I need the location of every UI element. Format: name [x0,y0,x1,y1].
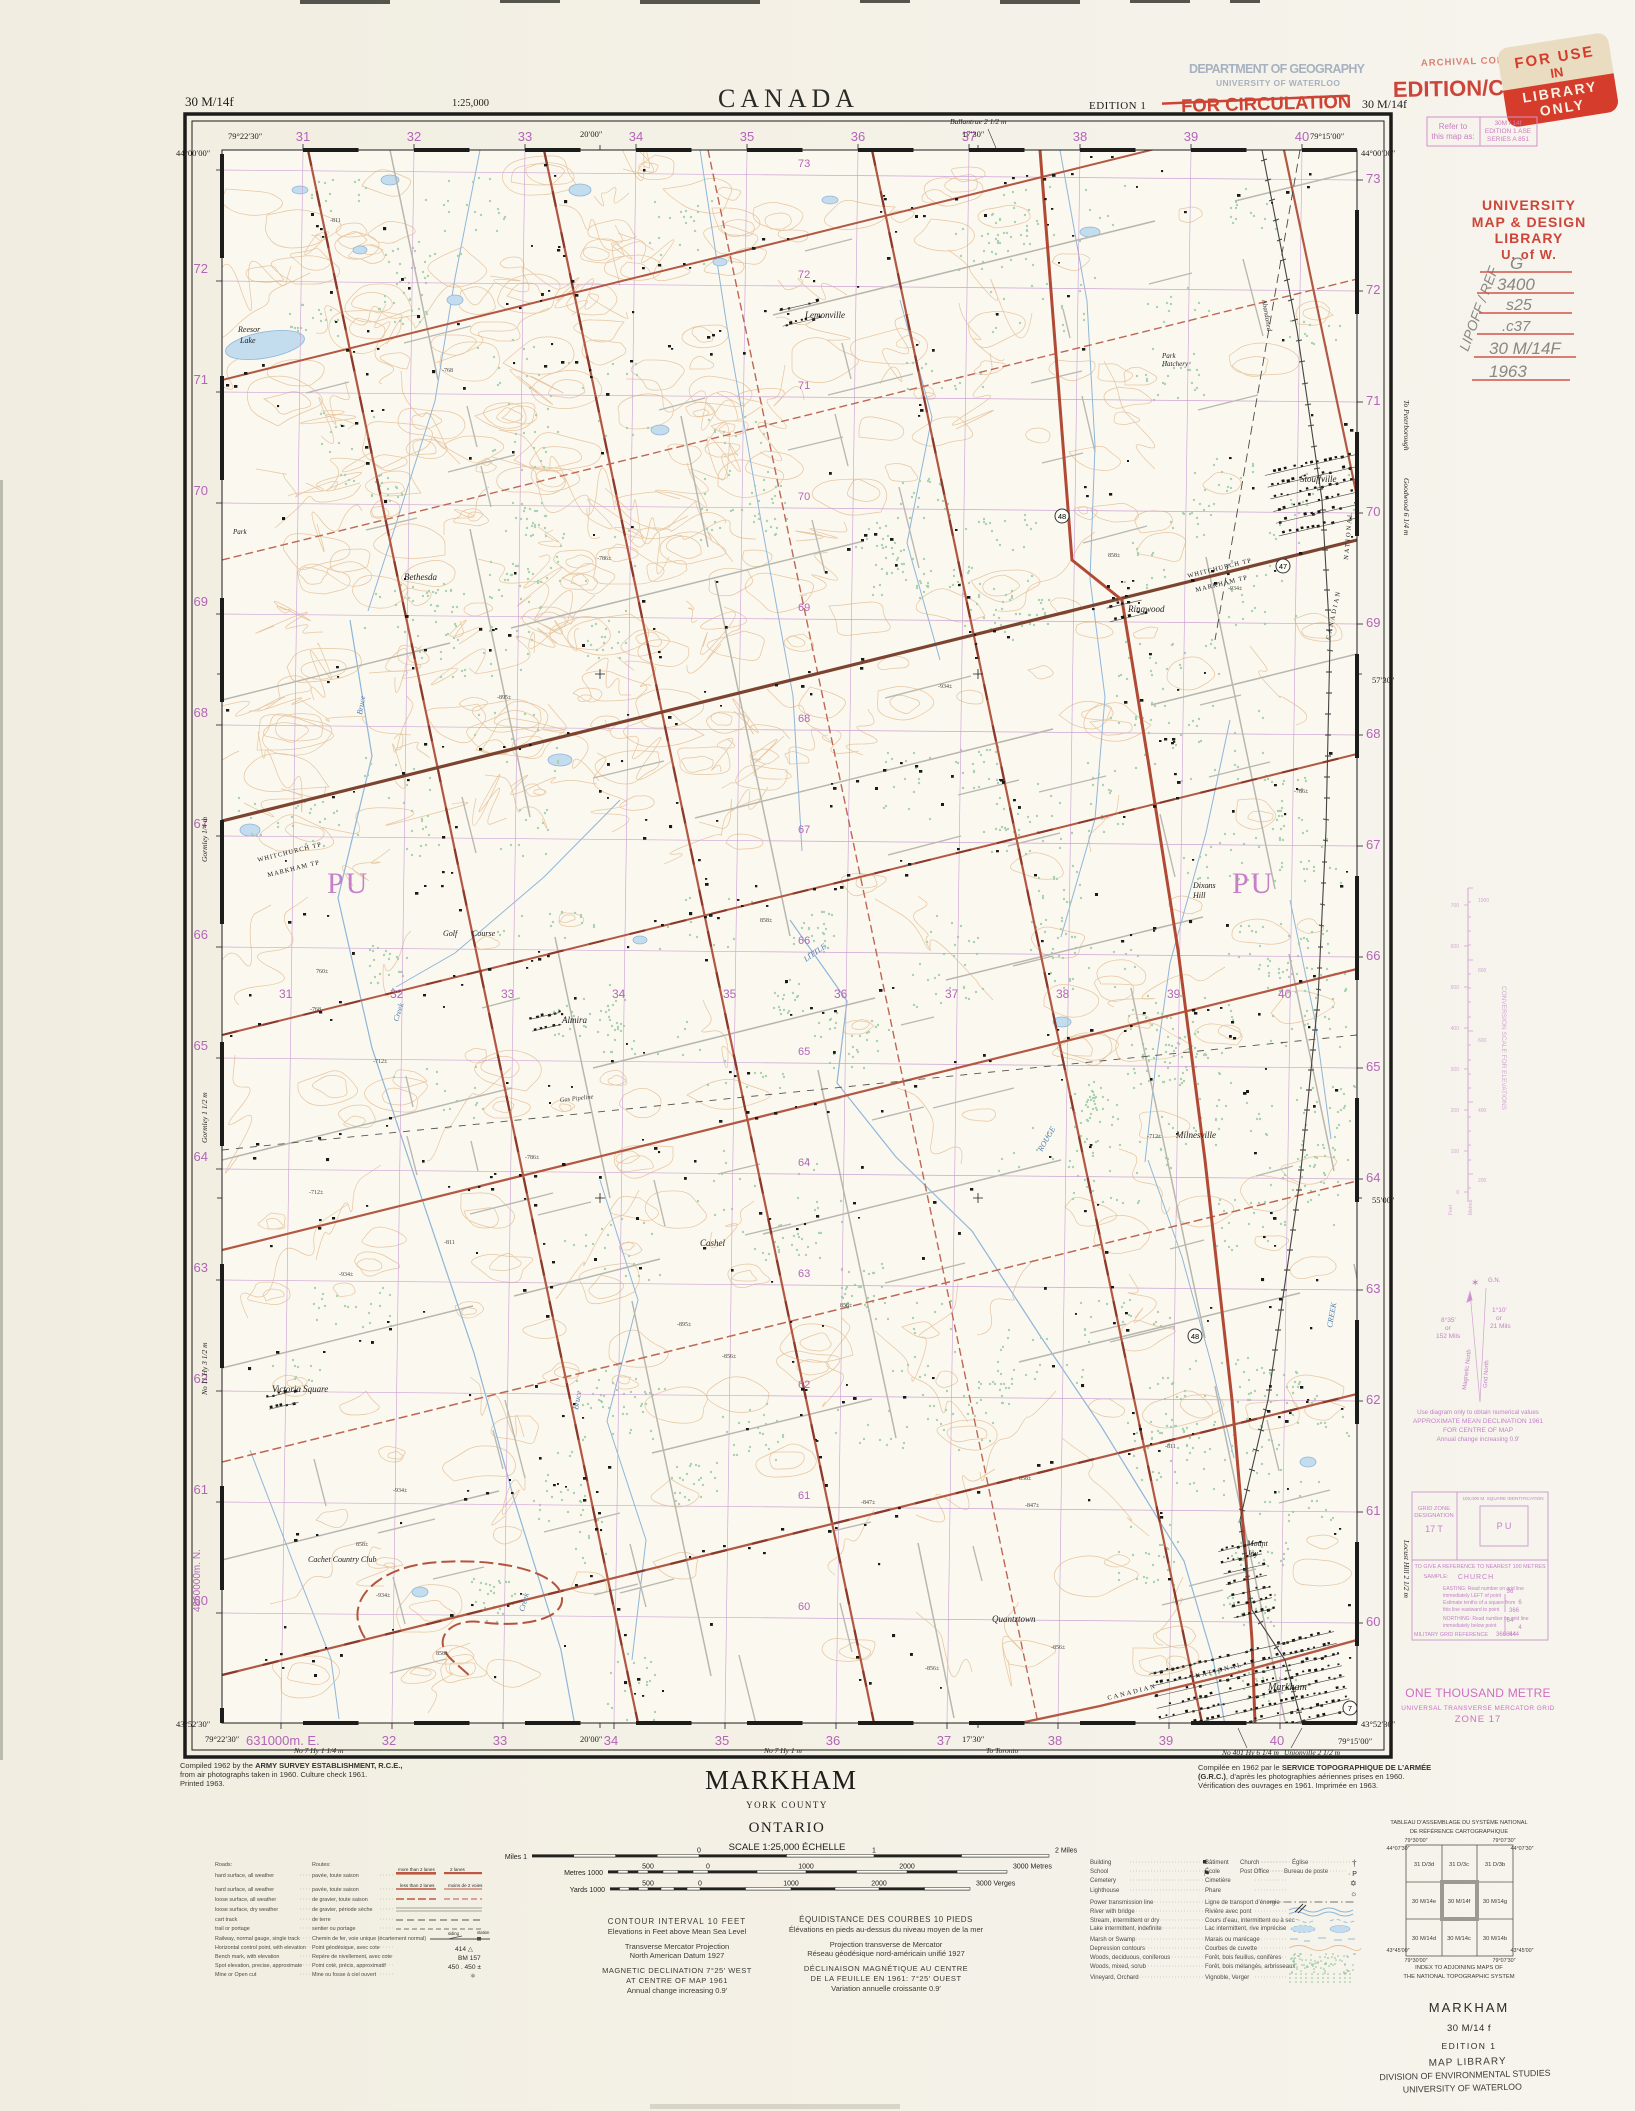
svg-text:72: 72 [1366,282,1380,297]
svg-text:31 D/3d: 31 D/3d [1414,1862,1434,1868]
svg-text:de gravier, période sèche: de gravier, période sèche [312,1907,373,1913]
svg-text:17′30″: 17′30″ [962,129,985,139]
svg-text:40: 40 [1278,987,1292,1001]
svg-text:67: 67 [1366,837,1380,852]
svg-text:500: 500 [1451,985,1460,991]
svg-text:34: 34 [612,987,626,1001]
svg-text:Hatchery: Hatchery [1161,360,1189,368]
svg-text:33: 33 [518,129,532,144]
svg-text:ONE THOUSAND METRE: ONE THOUSAND METRE [1405,1686,1550,1700]
svg-text:63: 63 [194,1260,208,1275]
svg-text:Vérification des ouvrages en 1: Vérification des ouvrages en 1961. Impri… [1198,1781,1378,1790]
svg-text:Hill: Hill [1192,891,1206,900]
svg-text:Point géodésique, avec cote: Point géodésique, avec cote [312,1945,380,1951]
svg-text:858±: 858± [840,1303,853,1309]
svg-text:Ligne de transport d’énergie: Ligne de transport d’énergie [1205,1900,1280,1906]
svg-text:hard surface, all weather: hard surface, all weather [215,1873,274,1879]
svg-text:FOR CIRCULATION: FOR CIRCULATION [1181,91,1352,116]
svg-text:Élévations en pieds au-dessus: Élévations en pieds au-dessus du niveau … [789,1925,984,1934]
svg-text:Lighthouse: Lighthouse [1090,1888,1120,1894]
svg-text:30 M/14f: 30 M/14f [1448,1899,1471,1905]
svg-text:31: 31 [296,129,310,144]
svg-text:858±: 858± [356,1542,369,1548]
svg-text:-768: -768 [442,368,453,374]
svg-text:70: 70 [194,483,208,498]
svg-text:Park: Park [1161,352,1177,360]
svg-text:BM 157: BM 157 [458,1955,481,1962]
svg-text:65: 65 [1366,1059,1380,1074]
svg-text:Mine ou fosse à ciel ouvert: Mine ou fosse à ciel ouvert [312,1972,377,1978]
svg-text:LIBRARY: LIBRARY [1495,230,1564,246]
svg-text:-934±: -934± [393,1488,408,1494]
svg-text:Point coté, précis, approximat: Point coté, précis, approximatif [312,1963,386,1969]
svg-text:2 lanes: 2 lanes [450,1867,466,1872]
svg-text:-934±: -934± [339,1272,354,1278]
svg-text:Chemin de fer, voie unique (éc: Chemin de fer, voie unique (écartement n… [312,1936,426,1942]
svg-text:FOR CENTRE OF MAP: FOR CENTRE OF MAP [1443,1427,1514,1434]
svg-text:60: 60 [798,1601,810,1613]
svg-text:21 Mils: 21 Mils [1490,1323,1511,1330]
svg-text:from air photographs taken in: from air photographs taken in 1960. Cult… [180,1770,367,1779]
svg-text:CANADA: CANADA [718,84,864,113]
svg-text:31: 31 [279,987,293,1001]
svg-text:1:25,000: 1:25,000 [452,98,489,109]
svg-text:63: 63 [798,1268,810,1280]
svg-text:Lemonville: Lemonville [804,310,845,320]
svg-text:Repère de nivellement, avec co: Repère de nivellement, avec cote [312,1954,392,1960]
svg-text:Depression contours: Depression contours [1090,1946,1145,1952]
svg-text:30M / 14f: 30M / 14f [1494,120,1521,127]
svg-text:73: 73 [1366,171,1380,186]
svg-text:57′30″: 57′30″ [1372,675,1395,685]
svg-text:64: 64 [798,1157,810,1169]
svg-text:MAP & DESIGN: MAP & DESIGN [1472,214,1586,230]
svg-text:Annual change increasing 0.9′: Annual change increasing 0.9′ [1437,1436,1521,1443]
svg-text:38: 38 [1056,987,1070,1001]
svg-text:Victoria Square: Victoria Square [272,1384,328,1394]
svg-text:1: 1 [872,1848,876,1855]
svg-text:Bureau de poste: Bureau de poste [1284,1869,1329,1875]
svg-text:69: 69 [798,602,810,614]
svg-text:⚑: ⚑ [1203,1869,1210,1878]
svg-text:44°07′30″: 44°07′30″ [1510,1846,1533,1852]
svg-text:Phare: Phare [1205,1888,1222,1894]
svg-text:Stouffville: Stouffville [1300,474,1337,484]
svg-text:Projection transverse de Merca: Projection transverse de Mercator [830,1940,943,1949]
svg-text:30 M/14 f: 30 M/14 f [1447,2023,1491,2034]
svg-text:858±: 858± [436,1651,449,1657]
svg-text:Lake intermittent, indefinite: Lake intermittent, indefinite [1090,1926,1162,1932]
svg-text:ZONE 17: ZONE 17 [1455,1714,1502,1725]
svg-text:DEPARTMENT OF GEOGRAPHY: DEPARTMENT OF GEOGRAPHY [1189,62,1366,76]
svg-text:31 D/3c: 31 D/3c [1449,1862,1469,1868]
svg-text:Gormley 1 1/2 m: Gormley 1 1/2 m [200,1092,209,1143]
svg-text:300: 300 [1451,1067,1460,1073]
svg-text:62: 62 [1366,1392,1380,1407]
svg-text:39: 39 [1167,987,1181,1001]
svg-text:Spot elevation, precise, appro: Spot elevation, precise, approximate [215,1963,302,1969]
svg-text:Church: Church [1240,1860,1259,1866]
svg-text:30 M/14g: 30 M/14g [1483,1899,1507,1905]
svg-text:Cours d’eau, intermittent ou à: Cours d’eau, intermittent ou à sec [1205,1918,1295,1924]
svg-text:1963: 1963 [1489,362,1527,381]
svg-text:32: 32 [407,129,421,144]
svg-text:450 . 450 ±: 450 . 450 ± [448,1964,481,1971]
svg-text:600: 600 [1451,944,1460,950]
svg-text:17 T: 17 T [1425,1524,1443,1534]
svg-text:School: School [1090,1869,1108,1875]
svg-text:Feet: Feet [1448,1204,1454,1215]
svg-text:43°45′00″: 43°45′00″ [1510,1948,1533,1954]
svg-text:39: 39 [1184,129,1198,144]
svg-text:Stream, intermittent or dry: Stream, intermittent or dry [1090,1918,1159,1924]
svg-text:less than 2 lanes: less than 2 lanes [400,1883,435,1888]
svg-text:Printed 1963.: Printed 1963. [180,1779,225,1788]
svg-text:UNIVERSITY: UNIVERSITY [1482,197,1576,213]
svg-text:CHURCH: CHURCH [1458,1574,1494,1581]
svg-text:Power transmission line: Power transmission line [1090,1900,1154,1906]
svg-text:-786±: -786± [1294,789,1309,795]
svg-text:Markham: Markham [1267,1682,1307,1693]
svg-text:68: 68 [1366,726,1380,741]
svg-text:YORK COUNTY: YORK COUNTY [746,1800,828,1810]
svg-text:0: 0 [698,1881,702,1888]
svg-text:43°52′30″: 43°52′30″ [176,1719,211,1729]
svg-text:SERIES A 851: SERIES A 851 [1487,136,1529,143]
svg-text:38: 38 [1048,1733,1062,1748]
svg-text:pavée, toute saison: pavée, toute saison [312,1887,359,1893]
svg-text:32: 32 [390,987,404,1001]
svg-text:siding: siding [448,1931,460,1936]
svg-text:station: station [477,1930,490,1935]
svg-text:Joy: Joy [1247,1549,1259,1558]
svg-text:500: 500 [642,1864,654,1871]
svg-text:61: 61 [194,1482,208,1497]
svg-text:36: 36 [1507,1589,1514,1595]
svg-text:Quantztown: Quantztown [992,1614,1036,1624]
svg-text:70: 70 [798,491,810,503]
svg-text:PU: PU [1232,867,1274,900]
svg-text:SAMPLE:: SAMPLE: [1423,1574,1449,1580]
svg-text:64: 64 [1507,1618,1514,1624]
svg-text:☼: ☼ [1350,1889,1357,1898]
svg-text:60: 60 [1366,1614,1380,1629]
svg-text:79°15′00″: 79°15′00″ [1310,131,1345,141]
svg-text:Forêt, bois feuillus, conifère: Forêt, bois feuillus, conifères [1205,1955,1281,1961]
svg-text:.c37: .c37 [1502,318,1531,335]
svg-text:30 M/14b: 30 M/14b [1483,1936,1507,1942]
svg-text:67: 67 [798,824,810,836]
svg-text:36: 36 [834,987,848,1001]
svg-text:858±: 858± [1108,553,1121,559]
svg-text:69: 69 [194,594,208,609]
svg-text:EDITION 1 ASE: EDITION 1 ASE [1485,128,1532,135]
svg-text:43°52′30″: 43°52′30″ [1361,1719,1396,1729]
svg-text:Milnesville: Milnesville [1175,1130,1216,1140]
svg-text:· P: · P [1348,1871,1357,1878]
svg-text:31 D/3b: 31 D/3b [1485,1862,1505,1868]
svg-text:71: 71 [798,380,810,392]
svg-text:†: † [1352,1858,1357,1868]
svg-text:366: 366 [1509,1608,1520,1614]
svg-text:trail or portage: trail or portage [215,1926,250,1932]
svg-text:s25: s25 [1506,297,1532,314]
svg-text:-712±: -712± [373,1059,388,1065]
svg-text:No 7 Hy 1 1/4 m: No 7 Hy 1 1/4 m [293,1746,344,1755]
svg-text:P U: P U [1497,1521,1512,1531]
svg-text:-934±: -934± [1228,586,1243,592]
svg-text:MAP LIBRARY: MAP LIBRARY [1429,2056,1507,2069]
svg-text:SCALE 1:25,000 ÉCHELLE: SCALE 1:25,000 ÉCHELLE [729,1842,846,1853]
svg-text:(G.R.C.), d’après les photogra: (G.R.C.), d’après les photographies aéri… [1198,1772,1404,1781]
svg-text:36: 36 [851,129,865,144]
svg-text:-811: -811 [330,218,341,224]
svg-text:1000: 1000 [798,1864,814,1871]
svg-text:MARKHAM: MARKHAM [705,1765,865,1795]
svg-text:this line eastward to point: this line eastward to point [1443,1607,1500,1613]
svg-text:NORTHING: Read number on grid: NORTHING: Read number on grid line [1443,1616,1529,1622]
svg-text:MARKHAM: MARKHAM [1429,2000,1509,2015]
svg-text:30 M/14F: 30 M/14F [1489,339,1562,358]
svg-text:30 M/14c: 30 M/14c [1447,1936,1471,1942]
svg-text:71: 71 [194,372,208,387]
svg-text:Lake: Lake [239,336,256,345]
svg-text:366644: 366644 [1496,1632,1517,1638]
svg-text:No 11 Hy 3 1/2 m: No 11 Hy 3 1/2 m [200,1342,209,1396]
svg-text:Locust Hill 2 1/2 m: Locust Hill 2 1/2 m [1402,1539,1411,1599]
svg-text:7: 7 [1348,1704,1352,1713]
svg-text:2000: 2000 [899,1864,915,1871]
svg-text:immediately LEFT of point: immediately LEFT of point [1443,1593,1502,1599]
svg-text:Variation annuelle croissante: Variation annuelle croissante 0.9′ [831,1984,941,1993]
svg-text:760±: 760± [316,969,329,975]
svg-text:Unionville 2 1/2 m: Unionville 2 1/2 m [1284,1748,1341,1757]
svg-text:-856±: -856± [1051,1645,1066,1651]
svg-text:Building: Building [1090,1860,1111,1866]
svg-text:moins de 2 voies: moins de 2 voies [448,1883,483,1888]
svg-text:UNIVERSITY OF WATERLOO: UNIVERSITY OF WATERLOO [1216,78,1340,88]
svg-text:79°07′30″: 79°07′30″ [1492,1838,1515,1844]
svg-text:-934±: -934± [376,1593,391,1599]
svg-text:Almira: Almira [561,1015,588,1025]
svg-text:65: 65 [194,1038,208,1053]
svg-text:Routes:: Routes: [312,1862,331,1868]
svg-text:loose surface, all weather: loose surface, all weather [215,1897,276,1903]
svg-text:Annual change increasing 0.9′: Annual change increasing 0.9′ [627,1986,728,1995]
svg-text:17′30″: 17′30″ [962,1734,985,1744]
svg-text:68: 68 [798,713,810,725]
svg-text:Mount: Mount [1246,1539,1269,1548]
svg-text:3000 Metres: 3000 Metres [1013,1864,1052,1871]
svg-text:No 7 Hy 1 m: No 7 Hy 1 m [763,1746,802,1755]
svg-text:DE LA FEUILLE EN 1961: 7°: DE LA FEUILLE EN 1961: 7°25′ OUEST [810,1974,961,1983]
svg-text:DÉCLINAISON MAGNÉTIQUE AU C: DÉCLINAISON MAGNÉTIQUE AU CENTRE [804,1964,968,1973]
svg-text:Course: Course [472,929,496,938]
svg-text:-934±: -934± [938,684,953,690]
svg-text:No 401 Hy 6 1/4 m: No 401 Hy 6 1/4 m [1221,1748,1279,1757]
svg-text:Refer to: Refer to [1439,122,1468,131]
svg-text:66: 66 [1366,948,1380,963]
svg-text:Courbes de cuvette: Courbes de cuvette [1205,1946,1258,1952]
svg-text:Gormley 1/4 m: Gormley 1/4 m [200,816,209,862]
svg-text:UNIVERSAL TRANSVERSE MERCATO: UNIVERSAL TRANSVERSE MERCATOR GRID [1401,1705,1554,1712]
svg-text:79°07′30″: 79°07′30″ [1492,1958,1515,1964]
svg-text:400: 400 [1451,1026,1460,1032]
svg-text:Roads:: Roads: [215,1862,232,1868]
svg-text:0: 0 [697,1848,701,1855]
svg-text:⚛: ⚛ [470,1972,476,1980]
svg-text:30 M/14f: 30 M/14f [185,94,234,109]
svg-text:INDEX TO ADJOINING MAPS OF: INDEX TO ADJOINING MAPS OF [1415,1965,1503,1971]
svg-text:DE RÉFÉRENCE CARTOGRAPHIQUE: DE RÉFÉRENCE CARTOGRAPHIQUE [1410,1828,1509,1835]
svg-text:100: 100 [1451,1149,1460,1155]
svg-text:MILITARY GRID REFERENCE: MILITARY GRID REFERENCE [1414,1632,1488,1638]
svg-text:37: 37 [945,987,959,1001]
svg-text:G: G [1510,254,1523,273]
svg-text:-856±: -856± [925,1666,940,1672]
svg-text:Ballantrae 2 1/2 m: Ballantrae 2 1/2 m [950,117,1007,126]
svg-text:or: or [1445,1325,1452,1332]
svg-text:79°22′30″: 79°22′30″ [228,131,263,141]
svg-text:40: 40 [1270,1733,1284,1748]
svg-text:-811: -811 [1165,1444,1176,1450]
svg-text:Woods, mixed, scrub: Woods, mixed, scrub [1090,1964,1147,1970]
svg-text:G.N.: G.N. [1488,1278,1501,1284]
svg-text:more than 2 lanes: more than 2 lanes [398,1867,435,1872]
svg-text:Ringwood: Ringwood [1127,604,1165,614]
svg-text:39: 39 [1159,1733,1173,1748]
svg-text:0: 0 [706,1864,710,1871]
svg-text:858±: 858± [1019,1476,1032,1482]
svg-text:30 M/14d: 30 M/14d [1412,1936,1436,1942]
svg-text:44°00′00″: 44°00′00″ [176,148,211,158]
svg-text:48: 48 [1191,1332,1199,1341]
svg-text:MAGNETIC DECLINATION 7°25′: MAGNETIC DECLINATION 7°25′ WEST [602,1966,752,1975]
svg-text:To Toronto: To Toronto [986,1746,1019,1755]
svg-text:-811: -811 [444,1240,455,1246]
svg-text:Transverse Mercator Projection: Transverse Mercator Projection [625,1942,729,1951]
svg-text:loose surface, dry weather: loose surface, dry weather [215,1907,278,1913]
svg-text:Vignoble, Verger: Vignoble, Verger [1205,1975,1249,1981]
svg-text:152 Mils: 152 Mils [1436,1333,1461,1340]
svg-text:47: 47 [1279,562,1287,571]
svg-text:35: 35 [740,129,754,144]
svg-text:33: 33 [493,1733,507,1748]
svg-text:Elevations in Feet above Mean: Elevations in Feet above Mean Sea Level [608,1927,747,1936]
svg-text:70: 70 [1366,504,1380,519]
svg-text:32: 32 [382,1733,396,1748]
svg-text:de terre: de terre [312,1917,331,1923]
svg-text:700: 700 [1451,903,1460,909]
svg-text:de gravier, toute saison: de gravier, toute saison [312,1897,368,1903]
svg-text:Cimetière: Cimetière [1205,1878,1231,1884]
svg-text:69: 69 [1366,615,1380,630]
svg-text:79°22′30″: 79°22′30″ [205,1734,240,1744]
svg-text:3000 Verges: 3000 Verges [976,1881,1016,1888]
svg-text:66: 66 [798,935,810,947]
svg-text:79°30′00″: 79°30′00″ [1404,1838,1427,1844]
svg-text:✡: ✡ [1350,1879,1357,1888]
svg-text:Mine or Open cut: Mine or Open cut [215,1972,257,1978]
svg-text:72: 72 [798,269,810,281]
svg-text:414 △: 414 △ [455,1946,474,1953]
svg-text:IN: IN [1549,64,1564,81]
svg-text:Cachet Country Club: Cachet Country Club [308,1555,376,1564]
svg-text:4860000m. N.: 4860000m. N. [192,1549,203,1612]
svg-text:100,000 M. SQUARE IDENTIFICATI: 100,000 M. SQUARE IDENTIFICATION [1462,1496,1543,1501]
svg-text:79°15′00″: 79°15′00″ [1338,1736,1373,1746]
svg-text:ÉQUIDISTANCE DES COURBES 10: ÉQUIDISTANCE DES COURBES 10 PIEDS [799,1915,973,1924]
svg-text:500: 500 [642,1881,654,1888]
svg-text:200: 200 [1478,1178,1487,1184]
svg-text:TABLEAU D’ASSEMBLAGE DU SYS: TABLEAU D’ASSEMBLAGE DU SYSTÈME NATIONAL [1390,1819,1527,1826]
svg-text:Horizontal control point, with: Horizontal control point, with elevation [215,1945,306,1951]
svg-text:Bench mark, with elevation: Bench mark, with elevation [215,1954,279,1960]
svg-text:73: 73 [798,158,810,170]
svg-text:Miles 1: Miles 1 [505,1854,527,1861]
svg-text:sentier ou portage: sentier ou portage [312,1926,355,1932]
svg-text:38: 38 [1073,129,1087,144]
svg-text:34: 34 [604,1733,618,1748]
svg-text:Cashel: Cashel [700,1238,726,1248]
svg-text:37: 37 [937,1733,951,1748]
svg-text:-847±: -847± [1025,1503,1040,1509]
svg-text:Rivière avec pont: Rivière avec pont [1205,1909,1252,1915]
svg-text:-786±: -786± [525,1155,540,1161]
svg-text:2 Miles: 2 Miles [1055,1848,1078,1855]
svg-text:64: 64 [1366,1170,1380,1185]
svg-text:Park: Park [232,528,248,536]
svg-text:200: 200 [1451,1108,1460,1114]
svg-text:Use diagram only to obtain num: Use diagram only to obtain numerical val… [1417,1409,1539,1416]
svg-text:44°00′00″: 44°00′00″ [1361,148,1396,158]
svg-text:34: 34 [629,129,643,144]
svg-text:CONTOUR INTERVAL 10 FEET: CONTOUR INTERVAL 10 FEET [608,1917,746,1926]
svg-text:Lac intermittent, rive impréci: Lac intermittent, rive imprécise [1205,1926,1287,1932]
svg-text:-712±: -712± [1147,1134,1162,1140]
svg-text:35: 35 [715,1733,729,1748]
svg-text:800: 800 [1478,968,1487,974]
svg-text:79°30′00″: 79°30′00″ [1404,1958,1427,1964]
svg-text:CONVERSION SCALE FOR ELEVATION: CONVERSION SCALE FOR ELEVATIONS [1500,986,1507,1111]
svg-text:THE NATIONAL TOPOGRAPHIC SY: THE NATIONAL TOPOGRAPHIC SYSTEM [1403,1974,1514,1980]
svg-text:55′00″: 55′00″ [1372,1195,1395,1205]
svg-text:To Peterborough: To Peterborough [1402,400,1411,451]
svg-text:858±: 858± [760,918,773,924]
svg-text:Compiled 1962 by the ARMY SURV: Compiled 1962 by the ARMY SURVEY ESTABLI… [180,1761,402,1770]
svg-text:61: 61 [1366,1503,1380,1518]
svg-text:Estimate tenths of a square fr: Estimate tenths of a square from [1443,1600,1515,1606]
svg-text:30 M/14e: 30 M/14e [1412,1899,1436,1905]
svg-text:1000: 1000 [783,1881,799,1888]
svg-text:Metres: Metres [1468,1199,1474,1215]
svg-text:20′00″: 20′00″ [580,1734,603,1744]
svg-text:PU: PU [327,867,369,900]
svg-text:Vineyard, Orchard: Vineyard, Orchard [1090,1975,1139,1981]
svg-text:65: 65 [798,1046,810,1058]
svg-text:hard surface, all weather: hard surface, all weather [215,1887,274,1893]
svg-text:Metres 1000: Metres 1000 [564,1870,603,1877]
svg-text:Goodwood 6 1/4 m: Goodwood 6 1/4 m [1402,478,1411,536]
svg-text:Woods, deciduous, coniferous: Woods, deciduous, coniferous [1090,1955,1170,1961]
svg-text:DESIGNATION: DESIGNATION [1414,1513,1454,1519]
svg-text:Marsh or Swamp: Marsh or Swamp [1090,1937,1136,1943]
svg-text:Golf: Golf [443,929,459,938]
svg-text:1°10′: 1°10′ [1492,1306,1507,1314]
svg-text:Railway, normal gauge, single: Railway, normal gauge, single track [215,1936,300,1942]
svg-text:Forêt, bois mélangés, arbrisse: Forêt, bois mélangés, arbrisseaux [1205,1964,1295,1970]
svg-text:71: 71 [1366,393,1380,408]
